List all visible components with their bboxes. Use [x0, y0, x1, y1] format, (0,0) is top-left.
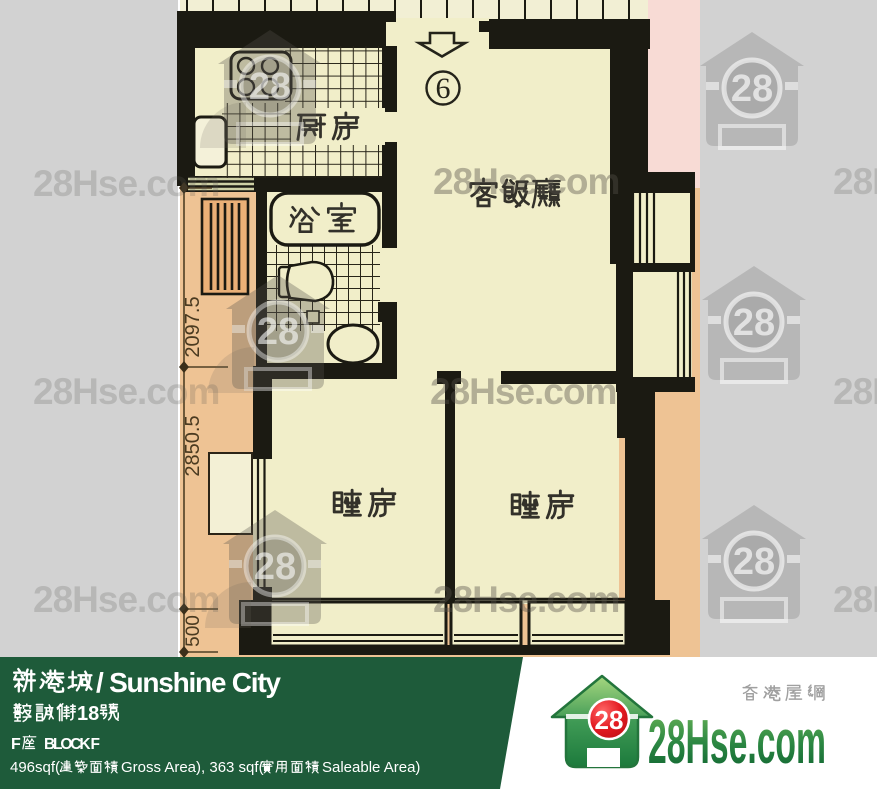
svg-text:Gross Area), 363 sqf(: Gross Area), 363 sqf( — [121, 759, 264, 776]
svg-text:18: 18 — [77, 703, 99, 725]
svg-text:Saleable Area): Saleable Area) — [322, 759, 420, 776]
svg-text:496sqf(: 496sqf( — [10, 759, 60, 776]
svg-text:2850.5: 2850.5 — [182, 415, 204, 476]
svg-text:6: 6 — [436, 72, 451, 105]
svg-text:F: F — [11, 736, 21, 753]
svg-text:/ Sunshine City: / Sunshine City — [96, 667, 281, 698]
svg-text:2097.5: 2097.5 — [182, 296, 204, 357]
svg-text:28: 28 — [595, 705, 624, 735]
svg-text:28Hse.com: 28Hse.com — [648, 708, 826, 777]
svg-text:BLOCK F: BLOCK F — [44, 736, 100, 753]
